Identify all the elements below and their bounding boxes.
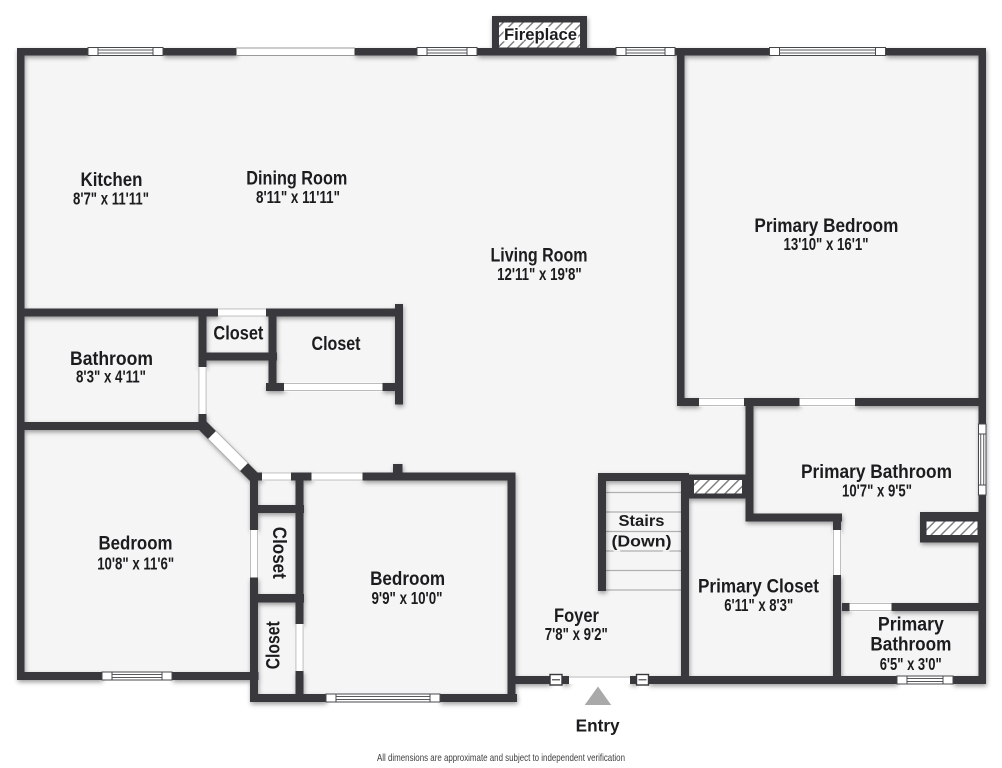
svg-text:Bathroom: Bathroom: [870, 634, 951, 655]
svg-text:9'9" x 10'0": 9'9" x 10'0": [372, 588, 443, 608]
svg-text:12'11" x 19'8": 12'11" x 19'8": [497, 264, 582, 284]
svg-text:7'8" x 9'2": 7'8" x 9'2": [545, 624, 608, 644]
svg-text:All dimensions are approximate: All dimensions are approximate and subje…: [377, 752, 625, 764]
svg-text:Closet: Closet: [264, 621, 285, 670]
svg-text:Entry: Entry: [576, 716, 620, 736]
svg-text:Closet: Closet: [268, 527, 289, 580]
svg-text:(Down): (Down): [612, 534, 672, 551]
svg-text:8'3" x 4'11": 8'3" x 4'11": [76, 367, 146, 387]
svg-text:13'10" x 16'1": 13'10" x 16'1": [784, 234, 869, 254]
svg-text:Fireplace: Fireplace: [504, 26, 577, 44]
svg-text:Closet: Closet: [312, 334, 362, 355]
svg-text:Primary: Primary: [878, 615, 944, 636]
svg-text:Bedroom: Bedroom: [99, 534, 173, 555]
svg-text:10'8" x 11'6": 10'8" x 11'6": [97, 553, 174, 573]
svg-text:Stairs: Stairs: [619, 513, 665, 530]
svg-text:6'11" x 8'3": 6'11" x 8'3": [724, 595, 793, 615]
svg-text:8'7" x 11'11": 8'7" x 11'11": [73, 189, 149, 209]
svg-text:Bedroom: Bedroom: [370, 569, 445, 590]
svg-text:10'7" x 9'5": 10'7" x 9'5": [842, 481, 912, 501]
svg-text:Closet: Closet: [213, 323, 264, 344]
svg-text:8'11" x 11'11": 8'11" x 11'11": [256, 187, 340, 207]
svg-text:Primary Bathroom: Primary Bathroom: [801, 462, 952, 483]
svg-text:6'5" x 3'0": 6'5" x 3'0": [880, 654, 942, 674]
